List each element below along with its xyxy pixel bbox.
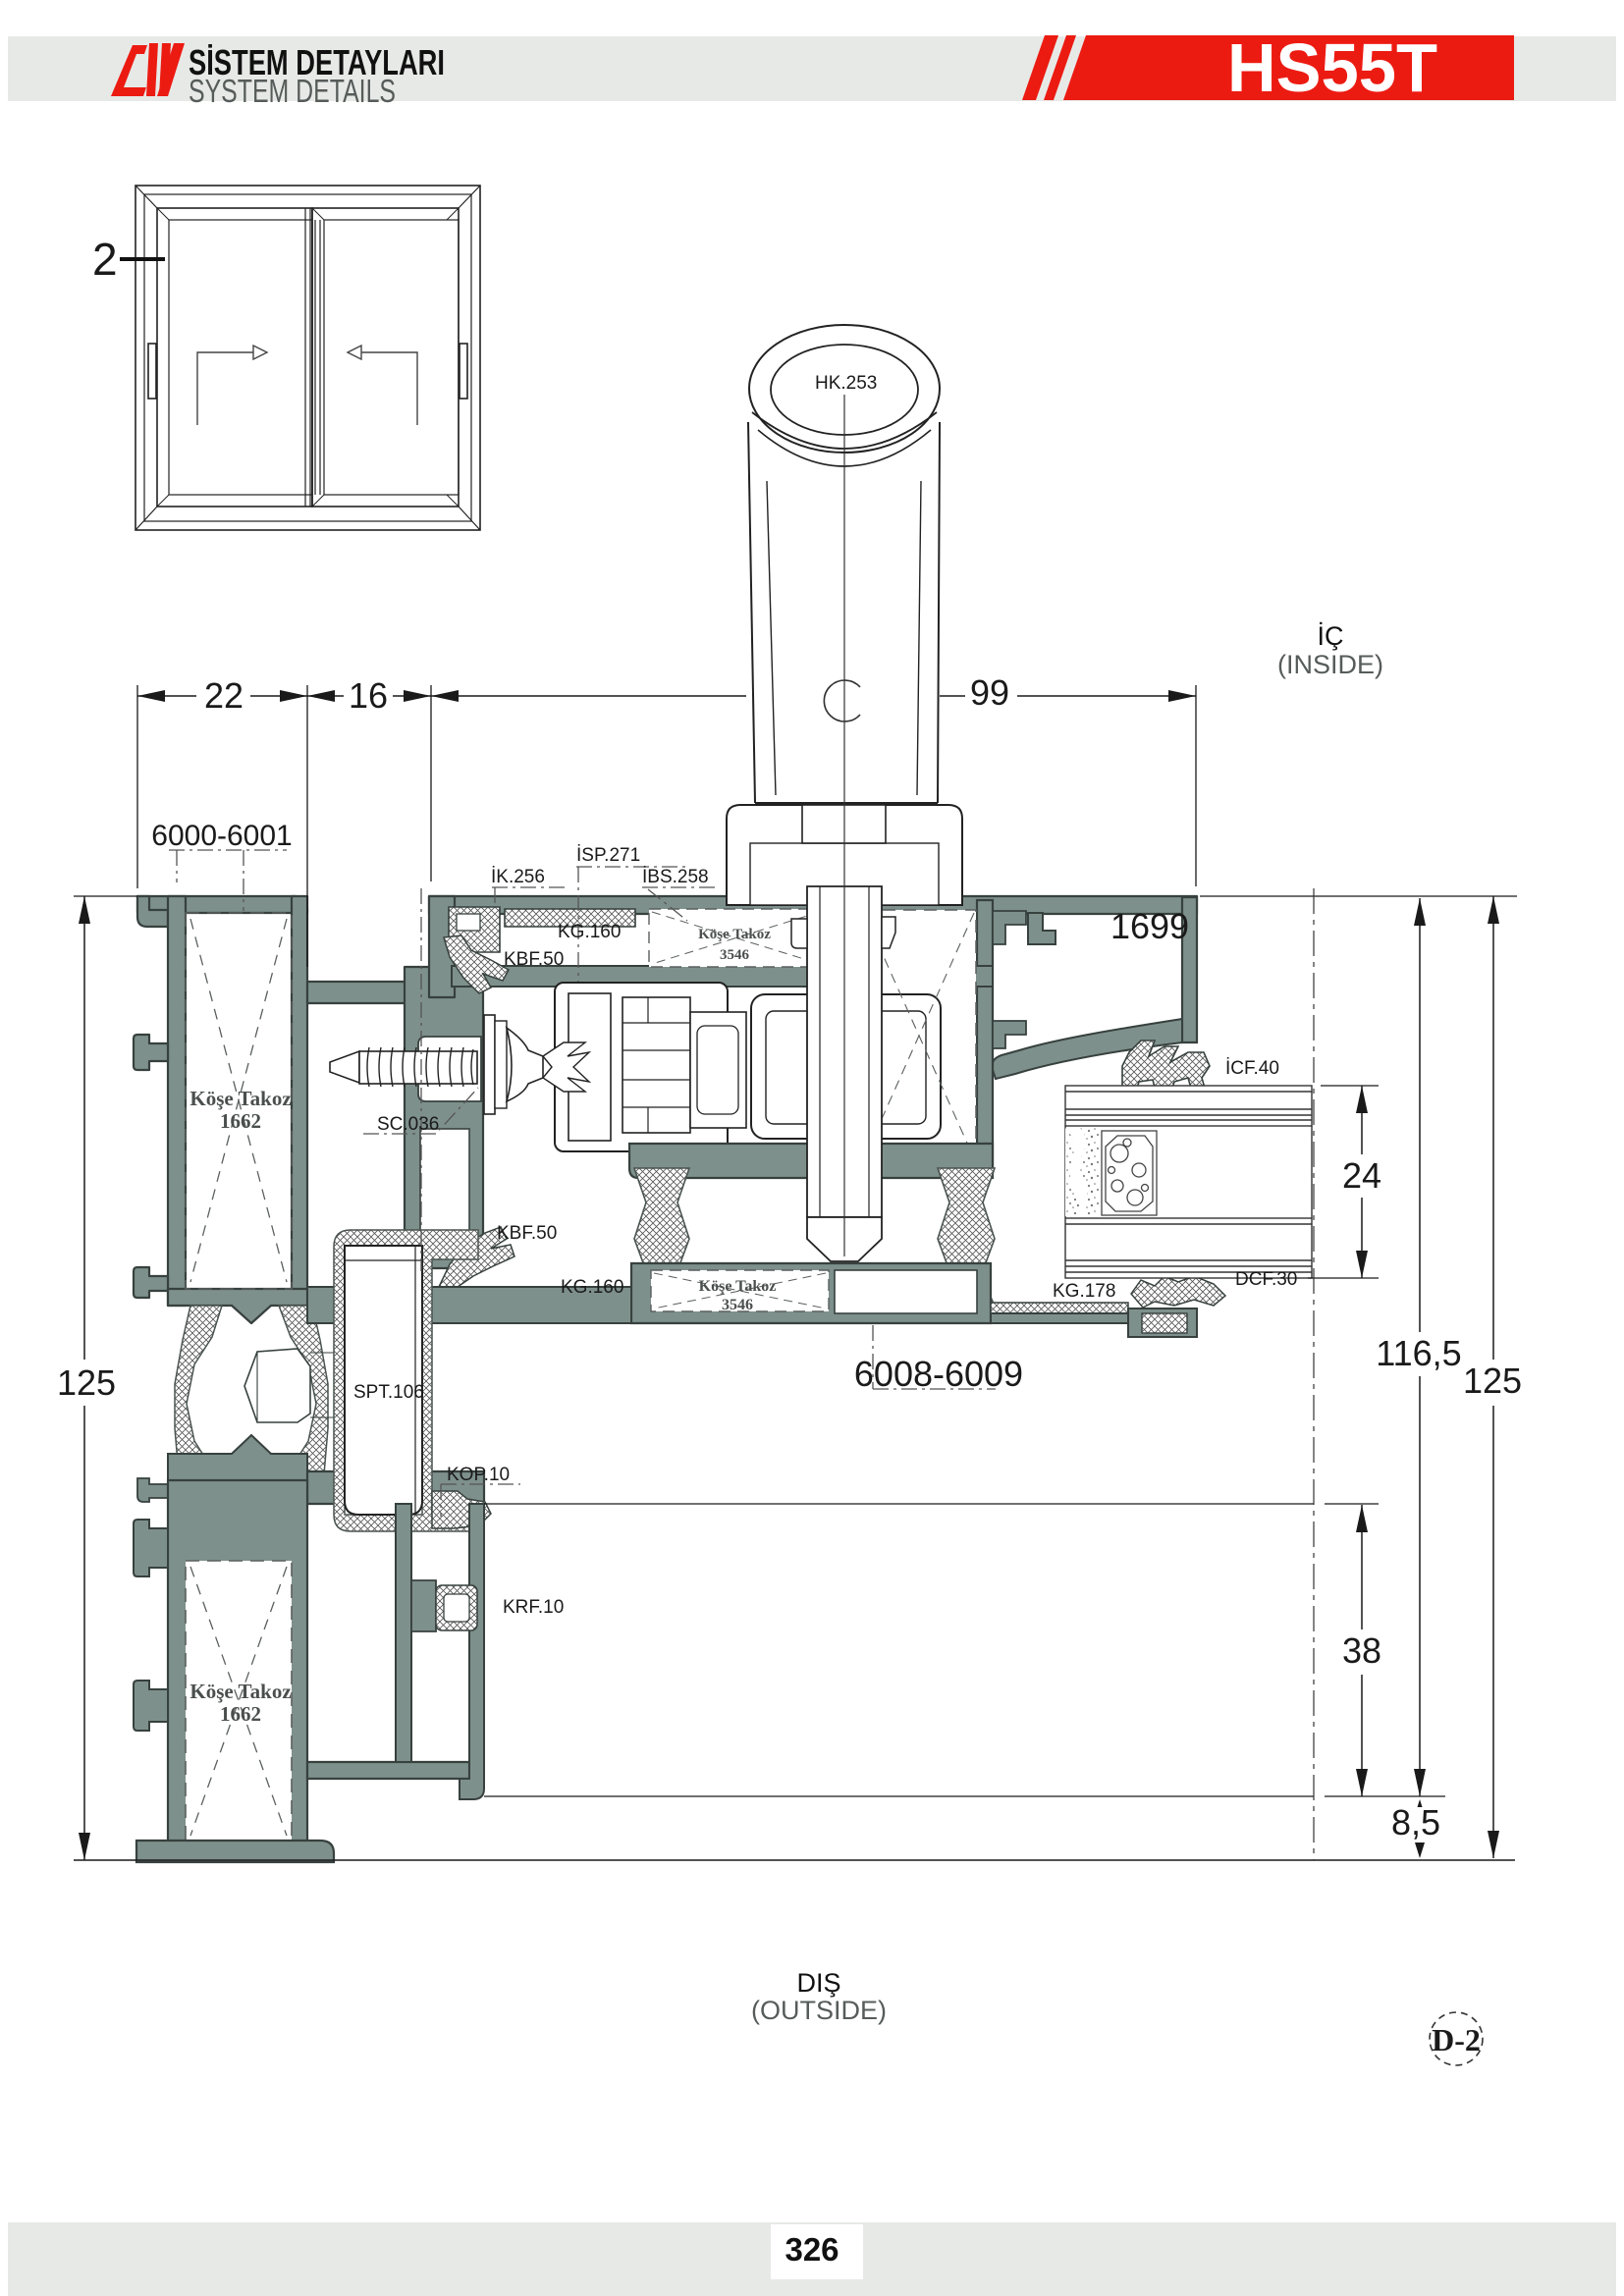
svg-text:1662: 1662 [220,1109,261,1133]
svg-text:3546: 3546 [720,947,750,963]
svg-text:1699: 1699 [1110,906,1189,946]
svg-text:KG.160: KG.160 [558,922,621,942]
svg-text:Köşe Takoz: Köşe Takoz [189,1680,291,1703]
svg-text:1662: 1662 [220,1702,261,1726]
svg-text:SYSTEM DETAILS: SYSTEM DETAILS [189,73,396,109]
svg-text:DIŞ: DIŞ [796,1968,840,1998]
svg-text:(INSIDE): (INSIDE) [1277,650,1383,679]
svg-text:125: 125 [57,1362,116,1403]
svg-text:99: 99 [970,672,1009,713]
svg-text:HK.253: HK.253 [815,373,877,394]
svg-text:İSP.271: İSP.271 [576,845,640,866]
svg-text:2: 2 [92,234,118,285]
svg-text:8,5: 8,5 [1391,1802,1440,1842]
svg-text:6000-6001: 6000-6001 [151,820,292,852]
svg-text:KOP.10: KOP.10 [447,1465,510,1485]
svg-text:KG.160: KG.160 [561,1277,623,1298]
svg-text:İCF.40: İCF.40 [1225,1058,1279,1079]
svg-text:SC.036: SC.036 [377,1114,439,1135]
svg-text:6008-6009: 6008-6009 [854,1354,1023,1394]
svg-text:22: 22 [204,675,244,716]
svg-text:326: 326 [785,2231,839,2268]
svg-text:SPT.106: SPT.106 [353,1382,424,1403]
svg-text:Köşe Takoz: Köşe Takoz [699,1278,777,1295]
svg-text:D-2: D-2 [1432,2022,1481,2057]
svg-text:Köşe Takoz: Köşe Takoz [698,927,771,942]
svg-text:KBF.50: KBF.50 [504,949,564,970]
svg-text:İK.256: İK.256 [491,867,545,887]
svg-text:(OUTSIDE): (OUTSIDE) [751,1996,887,2025]
svg-text:116,5: 116,5 [1376,1333,1461,1373]
svg-text:HS55T: HS55T [1227,29,1437,106]
svg-text:DCF.30: DCF.30 [1235,1269,1297,1290]
svg-text:İÇ: İÇ [1318,620,1344,651]
svg-text:İBS.258: İBS.258 [642,867,709,887]
svg-text:24: 24 [1342,1155,1381,1196]
svg-text:125: 125 [1463,1361,1522,1401]
svg-text:KG.178: KG.178 [1053,1281,1115,1302]
svg-text:KRF.10: KRF.10 [503,1597,564,1618]
svg-text:Köşe Takoz: Köşe Takoz [189,1087,291,1110]
svg-text:16: 16 [349,675,388,716]
svg-text:KBF.50: KBF.50 [497,1223,557,1244]
svg-text:3546: 3546 [722,1297,753,1313]
svg-text:38: 38 [1342,1630,1381,1671]
